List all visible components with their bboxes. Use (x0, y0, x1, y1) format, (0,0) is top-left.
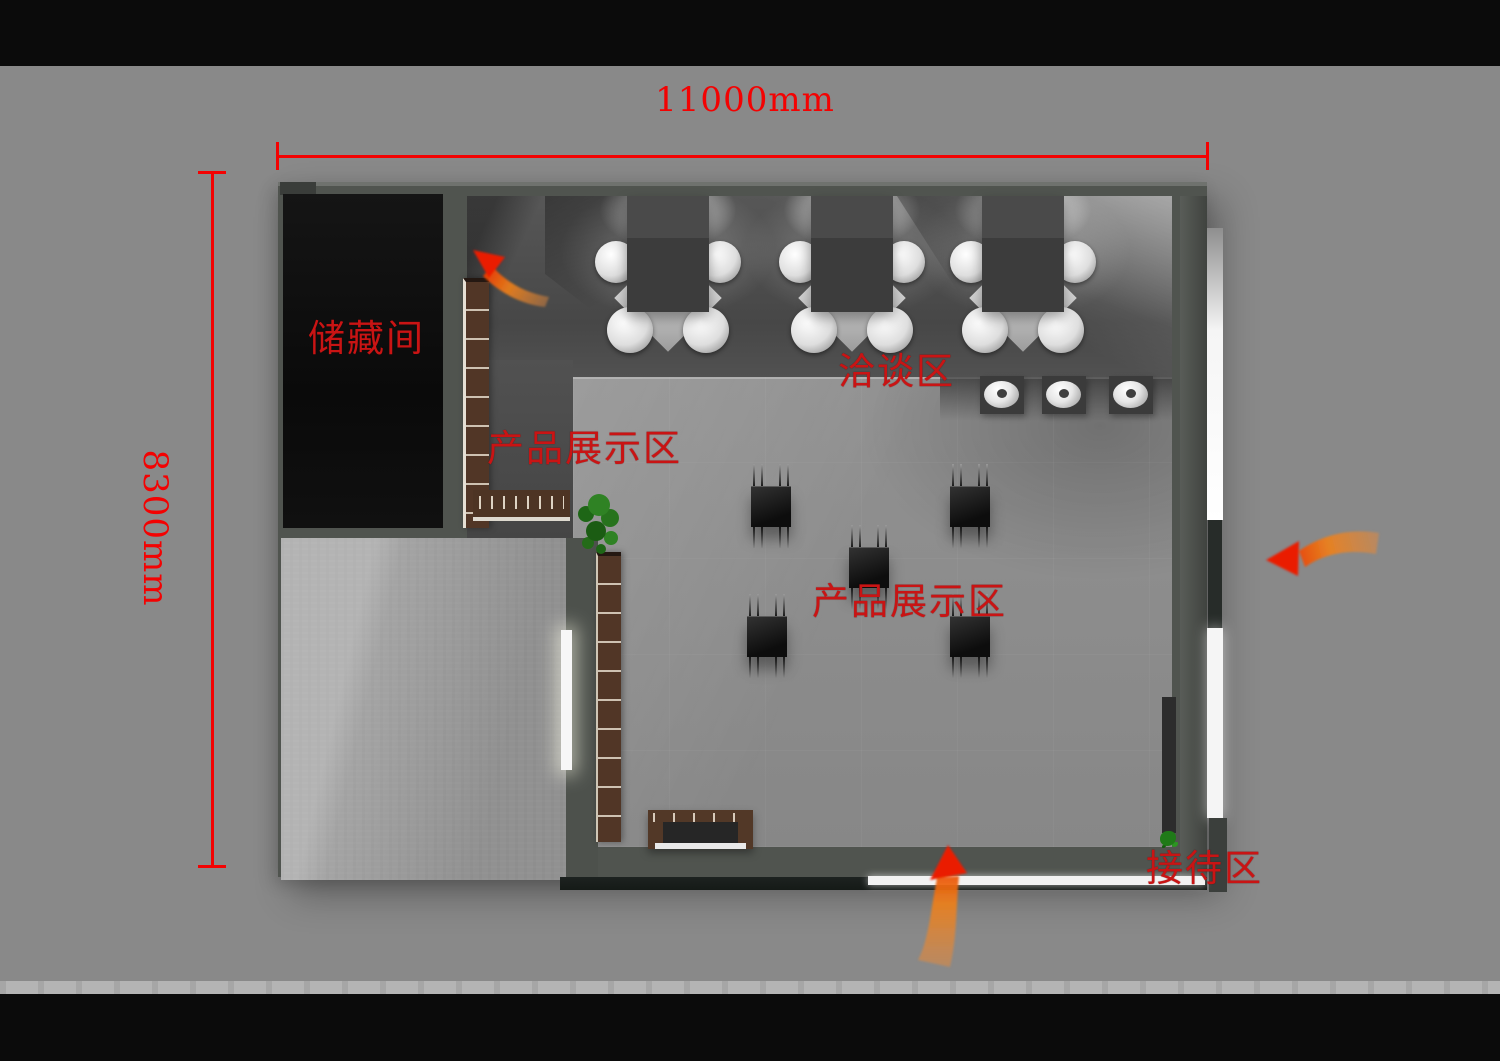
floor-plan-canvas: 储藏间 洽谈区 产品展示区 产品展示区 接待区 11000mm 8300mm (0, 0, 1500, 1061)
negotiation-area-label: 洽谈区 (838, 341, 955, 395)
height-dimension-line (211, 172, 214, 868)
shelf-cabinet-lower (596, 552, 621, 842)
potted-plant-icon (588, 494, 610, 516)
display-stand (743, 464, 799, 548)
reception-desk (648, 810, 753, 849)
width-dimension-tick-right (1206, 142, 1209, 170)
width-dimension-label: 11000mm (645, 80, 845, 120)
exterior-patio (281, 538, 566, 880)
top-letterbox (0, 0, 1500, 66)
height-dimension-tick-top (198, 171, 226, 174)
display-area-label-left: 产品展示区 (487, 418, 682, 472)
window-dark-mid (1208, 520, 1222, 628)
storage-room-label: 储藏间 (308, 308, 425, 362)
meeting-chair (962, 307, 1008, 353)
window-strip-lower (1207, 628, 1223, 818)
meeting-chair (683, 307, 729, 353)
height-dimension-tick-bottom (198, 865, 226, 868)
door-light-strip (561, 630, 572, 770)
overhead-panel (627, 196, 709, 312)
width-dimension-line (277, 155, 1209, 158)
meeting-set (945, 196, 1101, 356)
window-strip-upper (1207, 228, 1223, 520)
sideboard-cabinet (473, 490, 570, 521)
overhead-panel (982, 196, 1064, 312)
reception-area-label: 接待区 (1146, 838, 1263, 892)
stool (980, 376, 1024, 414)
footer-strip (0, 981, 1500, 994)
bottom-letterbox (0, 994, 1500, 1061)
meeting-chair (1038, 307, 1084, 353)
display-stand (942, 464, 998, 548)
flow-arrow-right-icon (1266, 531, 1379, 576)
right-wall (1180, 196, 1207, 877)
meeting-set (590, 196, 746, 356)
meeting-chair (791, 307, 837, 353)
stool (1109, 376, 1153, 414)
display-area-label-center: 产品展示区 (812, 571, 1007, 625)
meeting-set (774, 196, 930, 356)
stool (1042, 376, 1086, 414)
display-stand (739, 594, 795, 678)
wall-cabinet (1162, 697, 1176, 833)
width-dimension-tick-left (276, 142, 279, 170)
meeting-chair (607, 307, 653, 353)
height-dimension-label: 8300mm (141, 449, 175, 607)
overhead-panel (811, 196, 893, 312)
